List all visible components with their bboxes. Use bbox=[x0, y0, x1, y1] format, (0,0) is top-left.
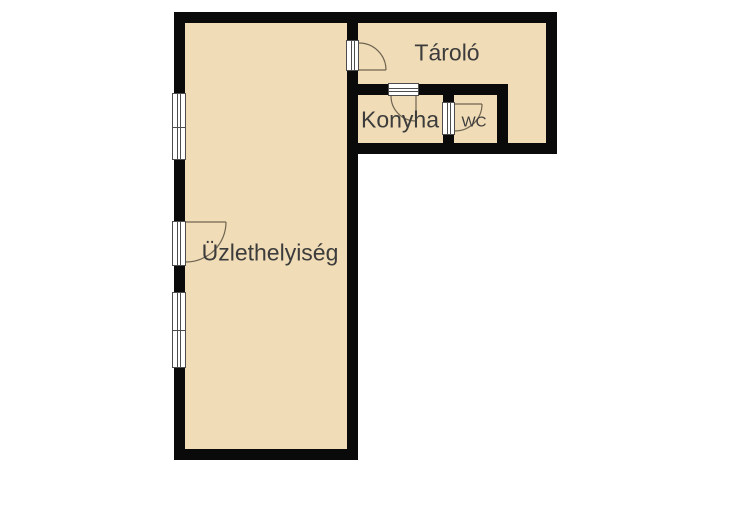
window-2 bbox=[172, 292, 186, 368]
wall-wc-left-segment-2 bbox=[443, 135, 454, 154]
door-wc bbox=[442, 102, 455, 135]
wall-left-segment-2 bbox=[174, 160, 185, 221]
wall-left-segment-1 bbox=[174, 12, 185, 93]
wall-tarolo-bottom-segment-1 bbox=[347, 84, 388, 95]
room-floor-uzlethelyiseg bbox=[174, 12, 358, 460]
wall-right bbox=[546, 12, 557, 154]
wall-center-vertical-segment-2 bbox=[347, 71, 358, 460]
door-wc-frame bbox=[447, 103, 451, 134]
door-tarolo-frame bbox=[351, 41, 355, 70]
room-label-wc: WC bbox=[462, 115, 487, 130]
wall-left-segment-3 bbox=[174, 266, 185, 292]
wall-wc-left-segment-1 bbox=[443, 95, 454, 102]
door-uzlethelyiseg bbox=[172, 221, 186, 266]
wall-wc-right bbox=[497, 84, 508, 154]
window-1-mullion bbox=[173, 127, 185, 128]
window-2-mullion bbox=[173, 330, 185, 331]
floor-plan: Üzlethelyiség Tároló Konyha WC bbox=[0, 0, 730, 516]
door-konyha-frame bbox=[389, 88, 418, 92]
wall-left-segment-4 bbox=[174, 368, 185, 460]
wall-tarolo-bottom-segment-2 bbox=[419, 84, 508, 95]
door-konyha bbox=[388, 83, 419, 96]
door-uzlethelyiseg-frame bbox=[177, 222, 181, 265]
wall-bottom-main bbox=[174, 449, 358, 460]
room-label-uzlethelyiseg: Üzlethelyiség bbox=[202, 242, 339, 265]
room-label-konyha: Konyha bbox=[361, 109, 439, 132]
wall-center-vertical-segment-1 bbox=[347, 12, 358, 40]
door-tarolo bbox=[346, 40, 359, 71]
room-label-tarolo: Tároló bbox=[414, 42, 479, 65]
window-1 bbox=[172, 93, 186, 160]
wall-top bbox=[174, 12, 557, 23]
